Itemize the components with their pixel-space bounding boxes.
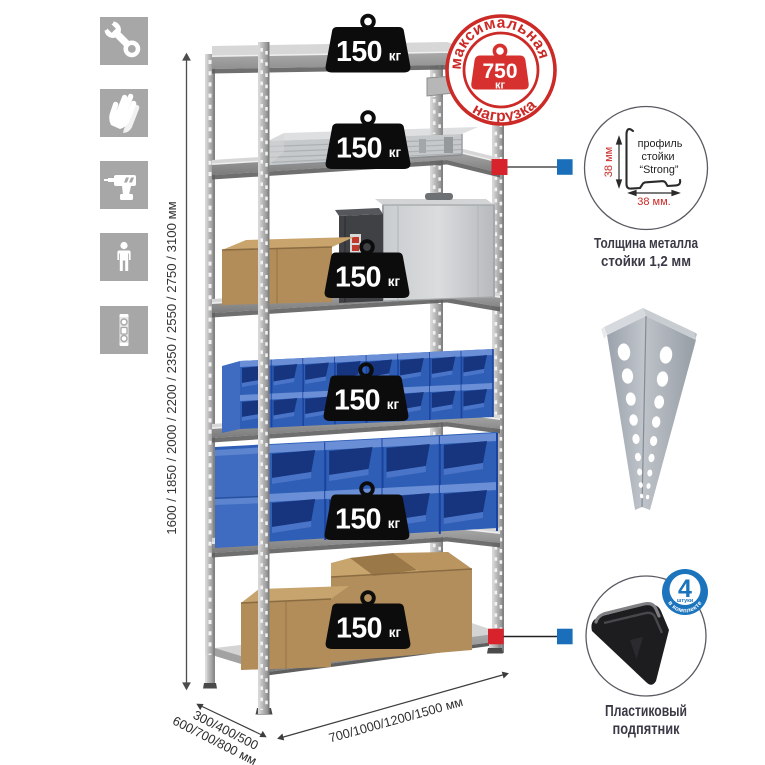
svg-text:1600 / 1850 / 2000 / 2200 / 23: 1600 / 1850 / 2000 / 2200 / 2350 / 2550 … (164, 201, 179, 534)
svg-text:Пластиковый: Пластиковый (605, 703, 687, 720)
svg-text:стойки 1,2 мм: стойки 1,2 мм (601, 253, 691, 270)
svg-text:кг: кг (387, 397, 400, 412)
svg-text:кг: кг (495, 80, 506, 92)
svg-text:кг: кг (389, 145, 402, 160)
svg-text:“Strong”: “Strong” (639, 164, 678, 176)
svg-text:профиль: профиль (638, 138, 683, 150)
svg-text:кг: кг (388, 274, 401, 289)
svg-text:стойки: стойки (641, 151, 674, 163)
svg-text:кг: кг (388, 516, 401, 531)
svg-text:150: 150 (335, 504, 381, 536)
svg-text:38 мм.: 38 мм. (637, 196, 670, 208)
svg-text:штуки: штуки (677, 598, 693, 604)
svg-text:150: 150 (336, 613, 382, 645)
svg-text:подпятник: подпятник (613, 721, 681, 738)
svg-text:150: 150 (336, 133, 382, 165)
svg-text:кг: кг (389, 49, 402, 64)
svg-text:150: 150 (336, 36, 382, 68)
svg-text:150: 150 (334, 385, 380, 417)
svg-text:150: 150 (335, 262, 381, 294)
svg-text:Толщина металла: Толщина металла (594, 235, 699, 252)
svg-text:38 мм: 38 мм (603, 147, 615, 177)
svg-text:кг: кг (389, 625, 402, 640)
